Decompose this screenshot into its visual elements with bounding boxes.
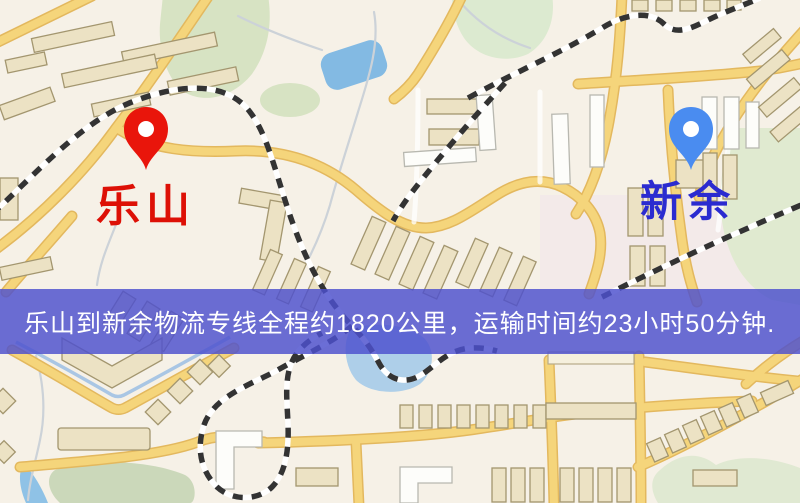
route-info-text: 乐山到新余物流专线全程约1820公里，运输时间约23小时50分钟. [24, 304, 775, 340]
route-info-banner: 乐山到新余物流专线全程约1820公里，运输时间约23小时50分钟. [0, 289, 800, 354]
origin-label: 乐山 [96, 182, 196, 231]
map-canvas: 乐山 新余 [0, 0, 800, 503]
destination-label: 新余 [640, 178, 736, 225]
map-screenshot: 乐山 新余 乐山到新余物流专线全程约1820公里，运输时间约23小时50分钟. [0, 0, 800, 503]
